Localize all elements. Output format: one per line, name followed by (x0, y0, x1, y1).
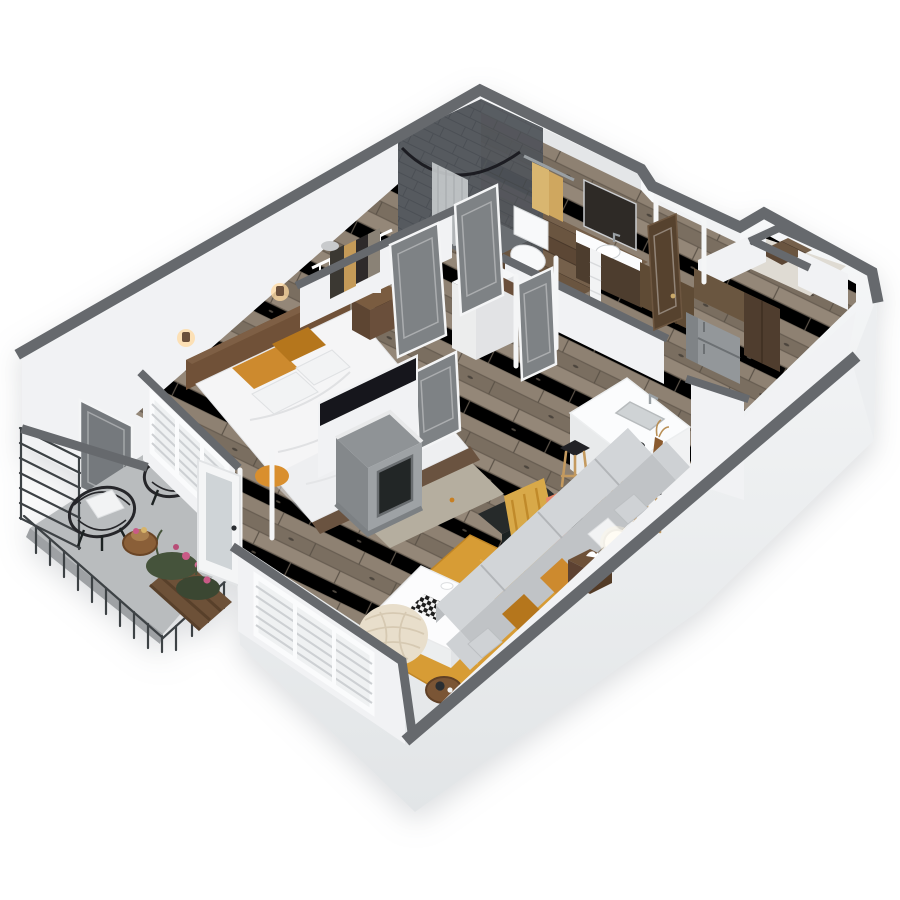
storage-box (321, 241, 339, 251)
french-door-panel (198, 460, 240, 586)
towel-2 (549, 171, 563, 222)
wall-sconce-right (271, 283, 289, 301)
fireplace (336, 412, 422, 534)
floor-plan-3d-render (0, 0, 900, 900)
towel-1 (532, 162, 549, 216)
wall-sconce-left (177, 329, 195, 347)
interior-door-1 (390, 223, 446, 357)
interior-door-2 (455, 185, 503, 315)
floor-plan-canvas (0, 0, 900, 900)
